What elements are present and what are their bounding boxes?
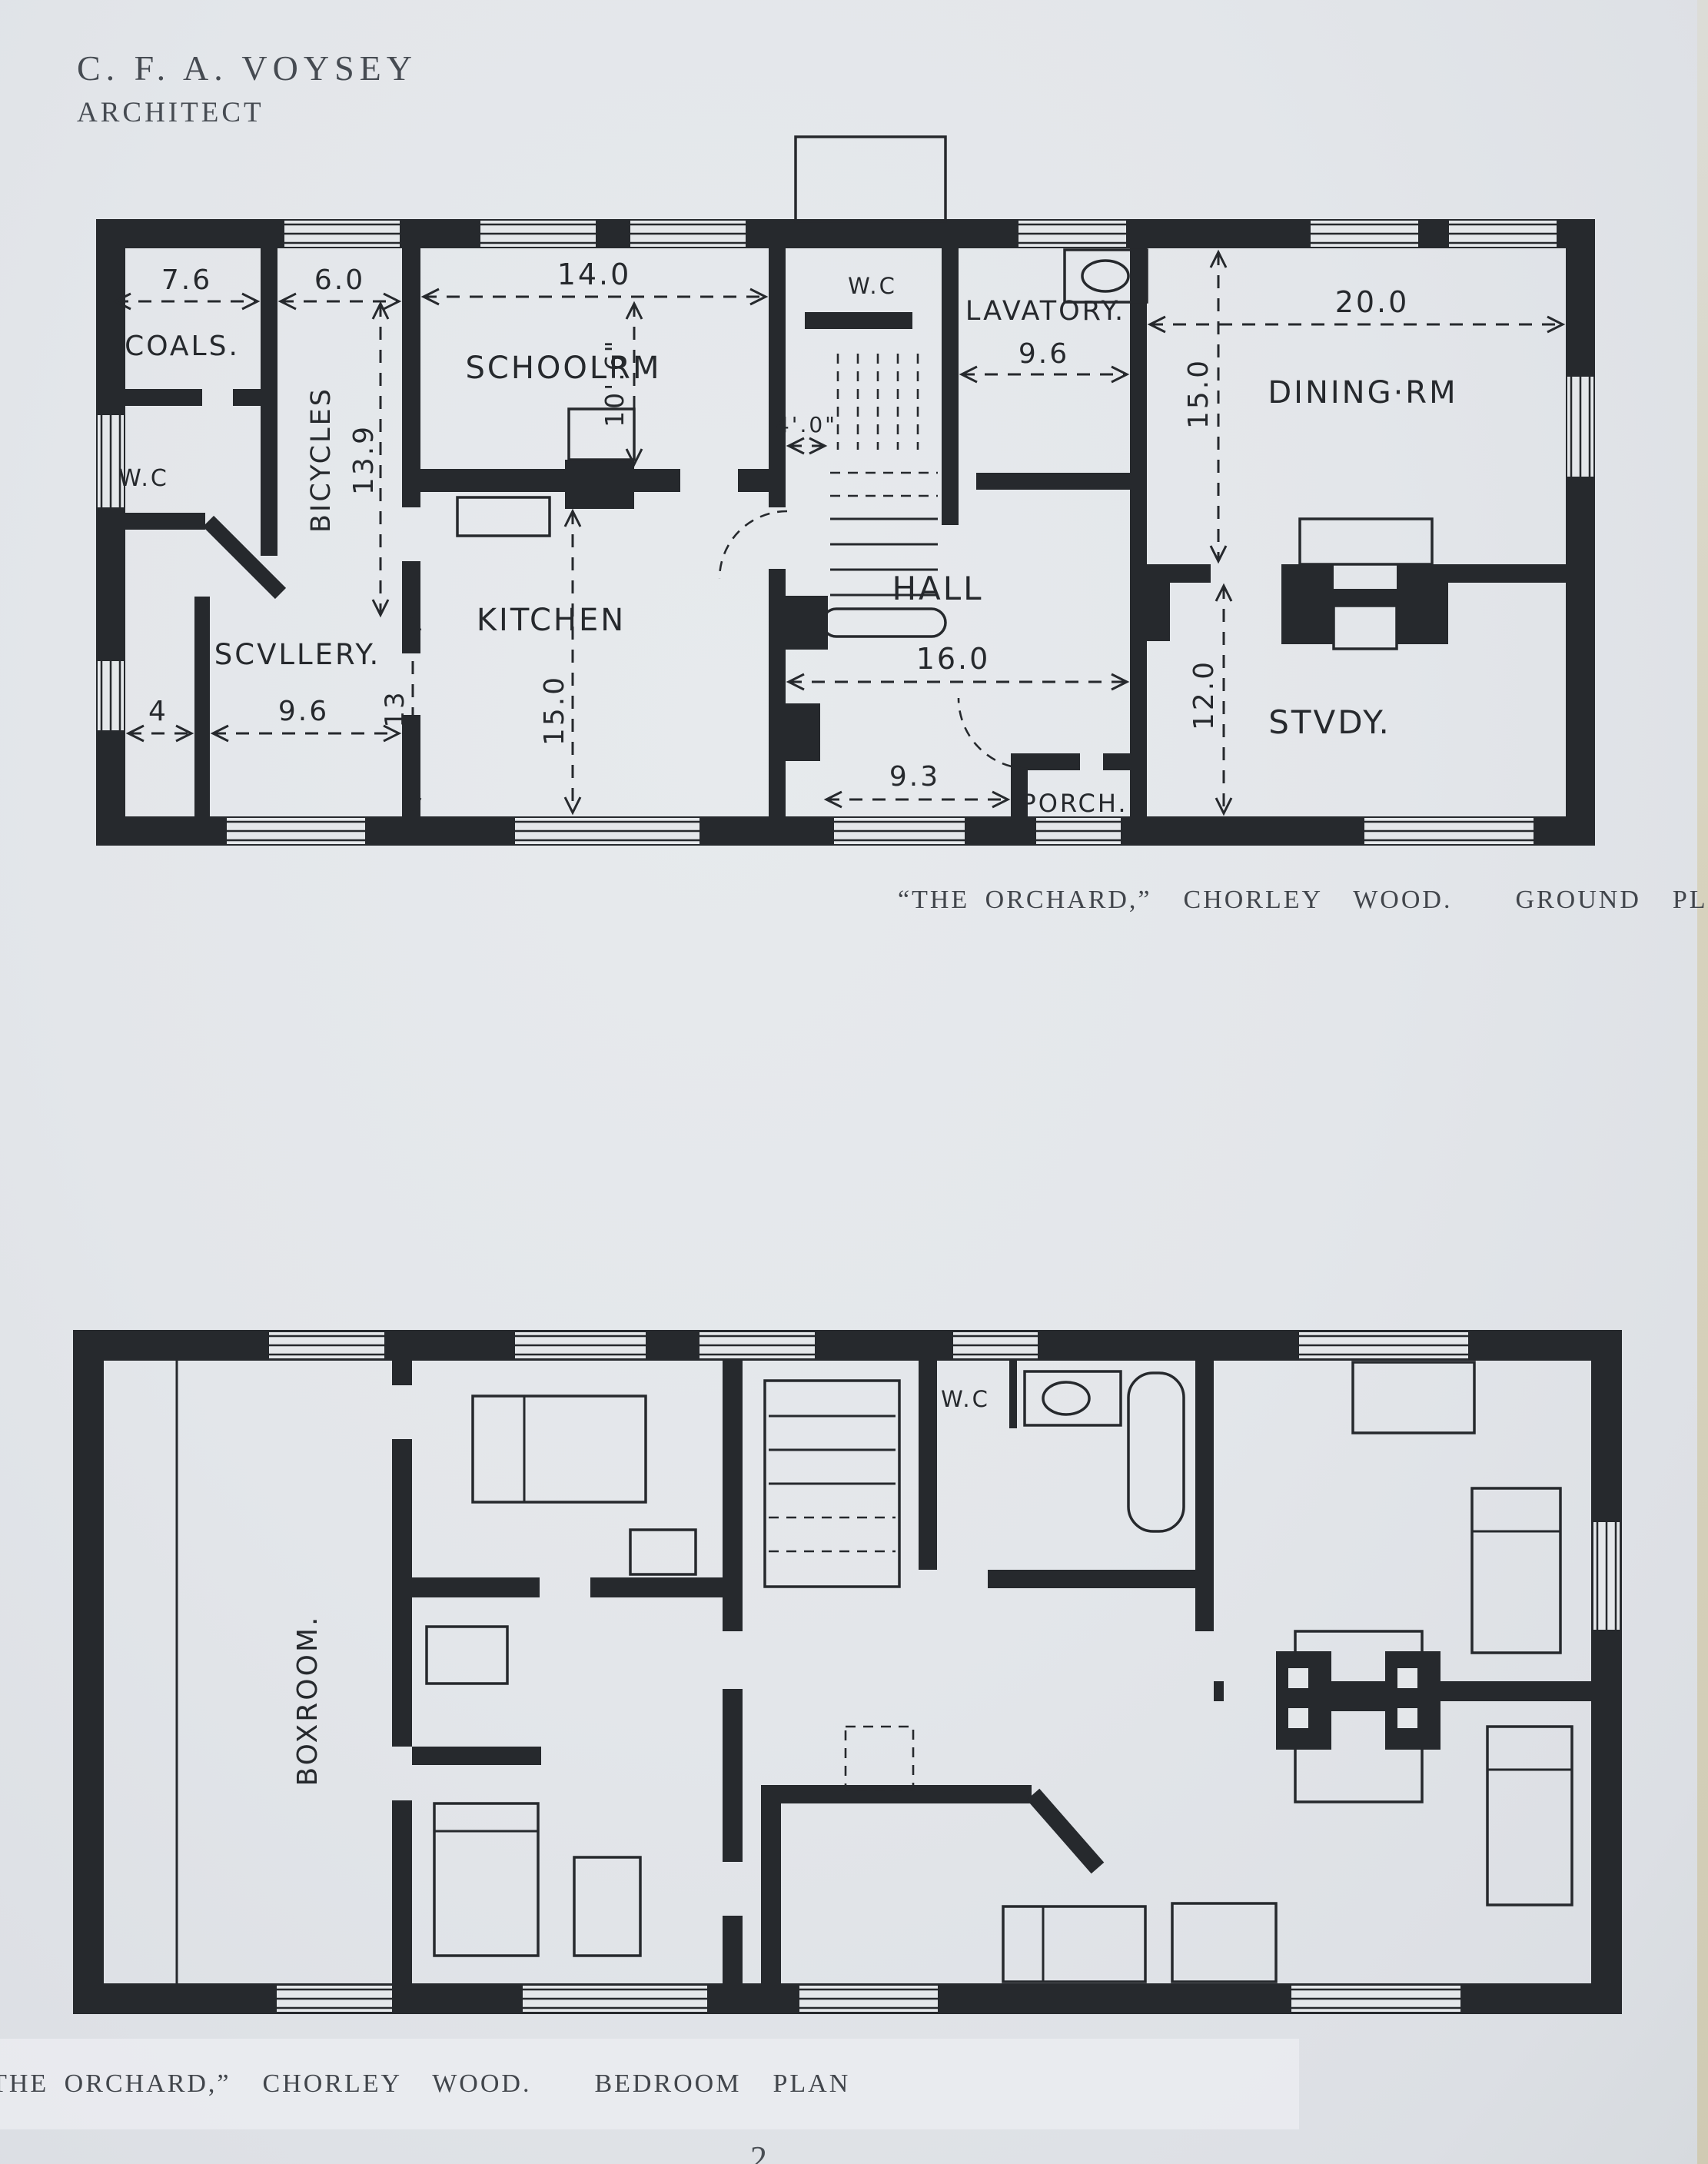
dim-schoolroom-width: 14.0 xyxy=(424,258,766,297)
label-wc-center: W.C xyxy=(848,273,897,299)
svg-text:4: 4 xyxy=(148,696,168,727)
svg-text:9.6: 9.6 xyxy=(278,696,329,727)
bedroom-staircase xyxy=(765,1381,899,1587)
label-kitchen: KITCHEN xyxy=(477,603,626,638)
label-bicycles: BICYCLES xyxy=(306,387,337,533)
label-hall: HALL xyxy=(892,570,983,607)
ground-plan-caption: “THE ORCHARD,” CHORLEY WOOD. GROUND PLAN xyxy=(898,886,1708,915)
basin xyxy=(1025,1371,1121,1425)
svg-text:7.6: 7.6 xyxy=(161,264,212,296)
rooflight-dashed-square xyxy=(846,1727,913,1790)
bedroom-plan-drawing: BOXROOM. W.C xyxy=(46,1299,1622,2056)
dim-hall-porch: 9.3 xyxy=(826,761,1008,799)
label-study: STVDY. xyxy=(1268,703,1391,741)
stair-curtail-step xyxy=(822,609,945,637)
svg-text:14.0: 14.0 xyxy=(557,258,632,291)
label-schoolroom: SCHOOLRM xyxy=(466,351,662,386)
label-scullery: SCVLLERY. xyxy=(214,638,380,671)
basin-bowl xyxy=(1043,1382,1089,1414)
dim-kitchen-depth: 15.0 xyxy=(539,511,573,813)
dim-passage-width: 4 xyxy=(128,696,191,733)
bathtub xyxy=(1128,1373,1184,1531)
bedroom-partition-walls xyxy=(177,1361,1591,1983)
bedroom-fireplace xyxy=(1276,1631,1441,1802)
chimney-projection xyxy=(796,137,945,221)
bathroom-fixtures xyxy=(1025,1371,1184,1531)
dim-dining-depth: 15.0 xyxy=(1183,252,1218,561)
dim-study-depth: 12.0 xyxy=(1188,586,1224,813)
dim-coals-width: 7.6 xyxy=(115,264,258,301)
svg-text:13.9: 13.9 xyxy=(348,424,380,495)
dim-lavatory-width: 9.6 xyxy=(962,338,1127,374)
architect-credit: C. F. A. VOYSEY ARCHITECT xyxy=(77,48,417,129)
label-wc-bedroom: W.C xyxy=(941,1386,990,1412)
dim-hall-width: 16.0 xyxy=(789,642,1127,682)
label-wc-left: W.C xyxy=(118,465,169,492)
svg-text:16.0: 16.0 xyxy=(916,642,991,676)
scanned-plan-page: C. F. A. VOYSEY ARCHITECT xyxy=(0,0,1708,2164)
svg-text:15.0: 15.0 xyxy=(539,675,570,746)
page-edge-shading xyxy=(1697,0,1708,2164)
label-boxroom: BOXROOM. xyxy=(292,1615,324,1787)
dining-study-fireplace xyxy=(1281,519,1448,649)
svg-text:13: 13 xyxy=(380,690,410,727)
dim-scullery-width: 9.6 xyxy=(213,696,399,733)
svg-text:20.0: 20.0 xyxy=(1335,285,1410,319)
svg-text:9.6: 9.6 xyxy=(1018,338,1069,370)
bedroom-plan-caption: “THE ORCHARD,” CHORLEY WOOD. BEDROOM PLA… xyxy=(0,2069,850,2099)
page-number-partial: 2 xyxy=(750,2139,767,2164)
architect-name: C. F. A. VOYSEY xyxy=(77,48,417,88)
svg-text:4'.0": 4'.0" xyxy=(776,412,837,437)
dim-bicycles-width: 6.0 xyxy=(281,264,399,301)
label-lavatory: LAVATORY. xyxy=(965,296,1125,327)
door-swings xyxy=(719,511,1029,769)
dim-bicycles-depth: 13.9 xyxy=(348,304,380,615)
label-dining: DINING·RM xyxy=(1268,375,1457,411)
label-porch: PORCH. xyxy=(1021,789,1128,818)
svg-text:9.3: 9.3 xyxy=(889,761,940,793)
dim-dining-width: 20.0 xyxy=(1150,285,1563,324)
svg-text:15.0: 15.0 xyxy=(1183,358,1215,429)
svg-text:6.0: 6.0 xyxy=(314,264,365,296)
label-coals: COALS. xyxy=(125,331,240,362)
ground-plan-drawing: 7.6 6.0 14.0 20.0 9.6 4'.0" 15.0 12.0 16… xyxy=(65,123,1649,892)
svg-text:12.0: 12.0 xyxy=(1188,660,1220,730)
